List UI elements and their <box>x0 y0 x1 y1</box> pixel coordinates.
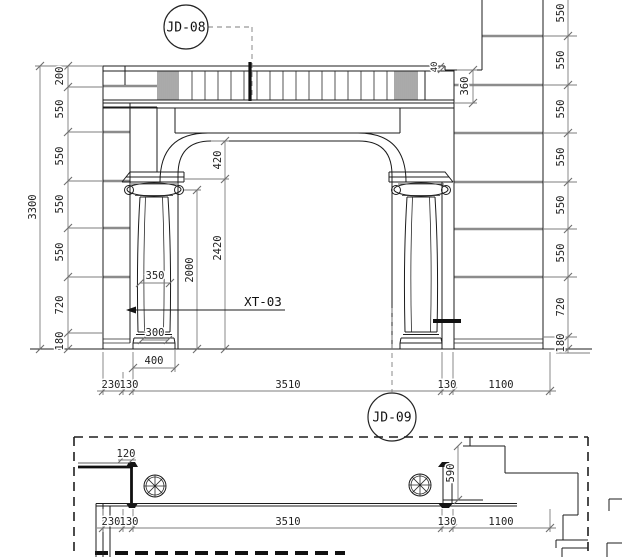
dim-label-corner-return: 360 <box>459 77 471 96</box>
dim-label: 3510 <box>275 379 300 391</box>
jd09-label: JD-09 <box>372 411 411 426</box>
right-abacus <box>389 172 453 182</box>
opening-dim-ticks <box>129 63 477 372</box>
dim-label-jamb-thickness: 120 <box>117 448 136 460</box>
masonry-joints <box>103 36 543 277</box>
left-capital-echinus <box>127 183 181 196</box>
cornice-fluting-left <box>158 71 178 100</box>
dim-label: 550 <box>54 243 66 262</box>
plan-view: 230 130 3510 130 1100 120 590 <box>74 437 622 557</box>
dim-label: 130 <box>120 516 139 528</box>
dim-label: 180 <box>54 332 66 351</box>
plan-extension-lines <box>103 509 550 532</box>
jamb-reveal-lines <box>178 175 392 349</box>
dim-label: 130 <box>438 516 457 528</box>
dim-label: 550 <box>555 148 567 167</box>
dim-label: 130 <box>438 379 457 391</box>
right-shaft-edges <box>404 197 437 332</box>
plan-dimensions: 230 130 3510 130 1100 120 590 <box>99 442 554 532</box>
dim-label: 230 <box>102 516 121 528</box>
dim-label-shaft-upper: 350 <box>146 270 165 282</box>
dim-label: 1100 <box>488 379 513 391</box>
right-wall-step-outline <box>443 437 588 557</box>
right-column-base <box>400 332 442 349</box>
right-jamb-cap-bottom <box>438 503 453 508</box>
dim-label: 3510 <box>275 516 300 528</box>
plan-boundary-dash <box>74 437 588 557</box>
dim-label-plinth: 400 <box>145 355 164 367</box>
left-abacus <box>122 172 184 182</box>
cornice-dentils <box>192 71 387 100</box>
dim-label: 230 <box>102 379 121 391</box>
right-baseboard <box>454 339 543 343</box>
dim-label: 550 <box>54 100 66 119</box>
dim-label-shaft-lower: 300 <box>146 327 165 339</box>
jd08-reference-dash <box>208 27 252 100</box>
jd08-label: JD-08 <box>166 21 205 36</box>
dim-label: 550 <box>555 4 567 23</box>
dim-label-arch-drop: 420 <box>212 151 224 170</box>
drawing-sheet: 3300 200 550 550 550 550 720 180 550 550… <box>0 0 622 557</box>
leader-arrow-icon <box>126 307 136 314</box>
left-capital-lines <box>131 184 177 196</box>
dim-label: 200 <box>54 67 66 86</box>
dim-label: 550 <box>54 147 66 166</box>
dim-label: 1100 <box>488 516 513 528</box>
dim-label-overall-height: 3300 <box>27 194 39 219</box>
opening-extension-lines <box>175 70 477 372</box>
dim-label-column-height: 2000 <box>184 257 196 282</box>
dim-label: 550 <box>555 51 567 70</box>
arch-outer-curve <box>160 133 406 182</box>
right-shaft-flutes <box>411 197 431 332</box>
detail-marker-jd08: JD-08 <box>164 5 252 101</box>
dim-label: 550 <box>555 196 567 215</box>
dim-label-return-depth: 590 <box>445 464 457 483</box>
material-callout: XT-03 <box>126 294 285 314</box>
left-extension-lines <box>35 66 103 333</box>
dim-label: 720 <box>555 298 567 317</box>
detail-marker-jd09: JD-09 <box>368 308 461 441</box>
dim-label-opening-height: 2420 <box>212 235 224 260</box>
right-capital-echinus <box>394 183 448 196</box>
frieze-panel <box>103 108 454 133</box>
dim-label: 720 <box>54 296 66 315</box>
plan-column-sections <box>144 474 431 497</box>
wall-linework <box>30 0 592 349</box>
plan-dim-ticks <box>99 442 554 532</box>
right-wall-lines <box>442 0 543 349</box>
dim-label-cornice-step: 40 <box>430 62 440 73</box>
dimension-chains: 3300 200 550 550 550 550 720 180 550 550… <box>27 0 590 528</box>
arch-inner-curve <box>178 141 392 175</box>
left-baseboard <box>103 339 130 343</box>
left-column <box>122 172 184 349</box>
dim-label: 550 <box>555 100 567 119</box>
left-shaft-edges <box>137 197 170 332</box>
left-jamb-thick-lines <box>78 467 133 504</box>
cad-drawing-canvas: 3300 200 550 550 550 550 720 180 550 550… <box>0 0 622 557</box>
dim-label: 180 <box>555 334 567 353</box>
plan-front-edge-lines <box>96 504 517 557</box>
right-capital-lines <box>398 184 444 196</box>
plan-right-return <box>438 437 622 557</box>
dim-label: 550 <box>54 195 66 214</box>
dim-label: 130 <box>120 379 139 391</box>
corner-fragments <box>607 499 622 557</box>
material-label: XT-03 <box>244 294 282 309</box>
dim-label: 550 <box>555 244 567 263</box>
left-column-spokes <box>144 475 166 497</box>
right-column-spokes <box>409 474 431 496</box>
cornice-fluting-right <box>395 71 417 100</box>
elevation-view: 3300 200 550 550 550 550 720 180 550 550… <box>27 0 592 528</box>
right-wall-joints <box>454 36 543 277</box>
bottom-extension-lines <box>103 352 550 395</box>
left-shaft-flutes <box>144 197 164 332</box>
